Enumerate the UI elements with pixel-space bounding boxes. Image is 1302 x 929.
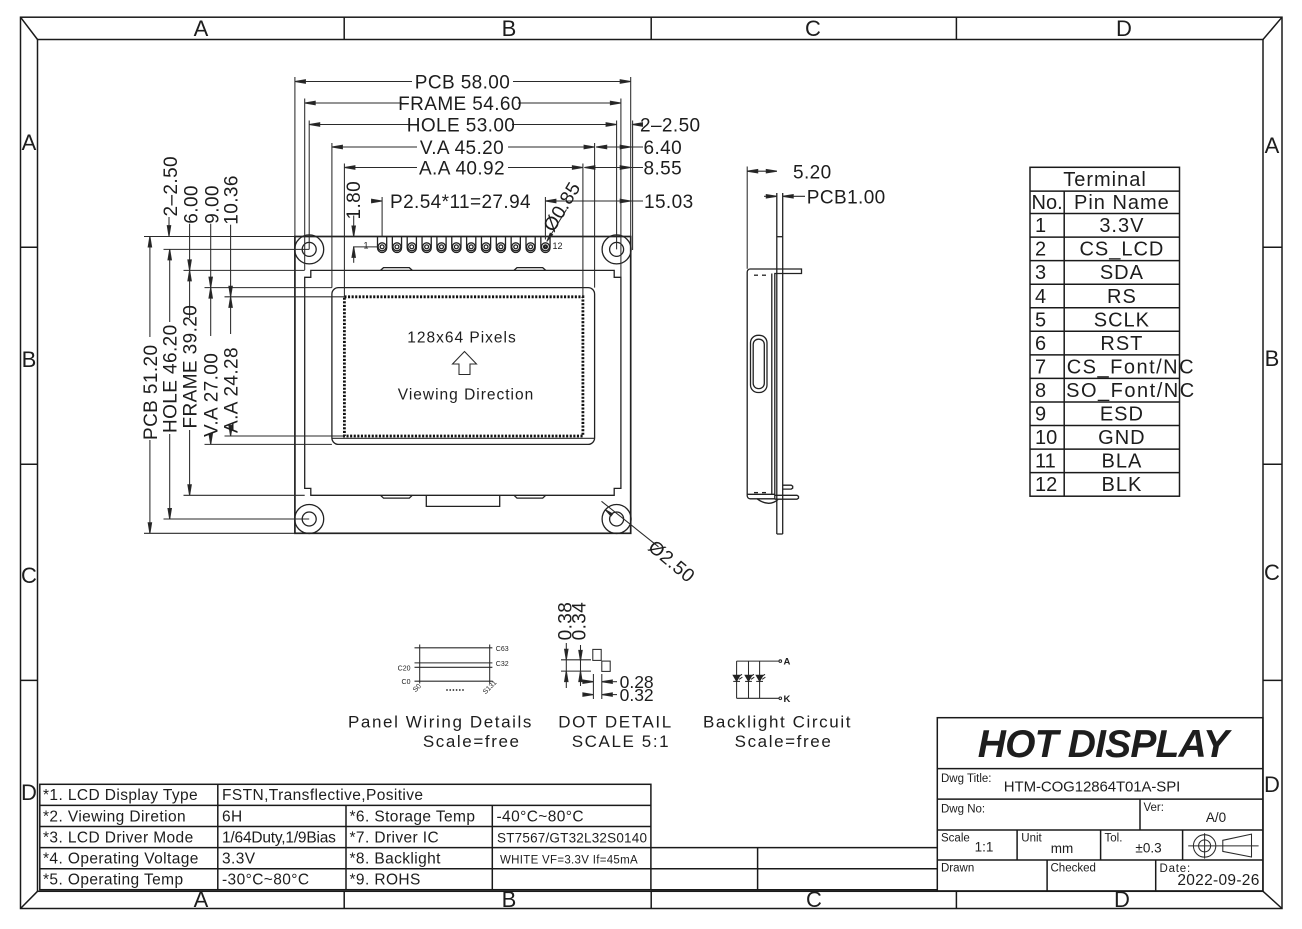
svg-text:Scale: Scale [941, 833, 970, 845]
svg-text:2: 2 [1035, 239, 1046, 261]
svg-text:*2. Viewing Diretion: *2. Viewing Diretion [43, 808, 186, 825]
svg-text:9: 9 [1035, 404, 1046, 426]
svg-text:Drawn: Drawn [941, 863, 974, 875]
svg-text:3.3V: 3.3V [222, 851, 256, 868]
svg-text:ESD: ESD [1100, 404, 1144, 426]
svg-text:6.00: 6.00 [182, 185, 203, 224]
svg-text:A: A [784, 657, 791, 668]
svg-text:WHITE VF=3.3V If=45mA: WHITE VF=3.3V If=45mA [500, 855, 638, 867]
svg-text:Scale=free: Scale=free [735, 732, 833, 751]
svg-text:D: D [21, 780, 37, 805]
svg-text:GND: GND [1098, 427, 1145, 449]
svg-text:8.55: 8.55 [644, 159, 683, 180]
svg-text:10.36: 10.36 [221, 175, 242, 225]
svg-text:BLA: BLA [1101, 451, 1142, 473]
svg-text:HTM-COG12864T01A-SPI: HTM-COG12864T01A-SPI [1004, 779, 1180, 796]
svg-text:C: C [21, 563, 37, 588]
svg-text:6.40: 6.40 [644, 138, 683, 159]
svg-text:15.03: 15.03 [644, 192, 694, 213]
svg-text:HOLE 46.20: HOLE 46.20 [161, 324, 182, 433]
svg-text:C63: C63 [496, 646, 509, 653]
svg-text:1: 1 [363, 241, 368, 251]
svg-text:FSTN,Transflective,Positive: FSTN,Transflective,Positive [222, 787, 423, 804]
svg-text:7: 7 [1035, 357, 1046, 379]
svg-text:mm: mm [1051, 841, 1074, 856]
svg-text:5.20: 5.20 [793, 162, 832, 183]
svg-text:Panel Wiring Details: Panel Wiring Details [348, 713, 533, 732]
svg-text:Ver:: Ver: [1144, 802, 1164, 814]
svg-text:C20: C20 [398, 665, 411, 672]
svg-text:PCB 51.20: PCB 51.20 [141, 345, 162, 441]
svg-text:A: A [194, 16, 209, 41]
svg-text:B: B [502, 887, 517, 912]
svg-text:1: 1 [1035, 215, 1046, 237]
svg-text:FRAME 54.60: FRAME 54.60 [398, 94, 522, 115]
svg-text:Dwg Title:: Dwg Title: [941, 773, 992, 785]
svg-text:2–2.50: 2–2.50 [640, 116, 701, 137]
svg-text:*9. ROHS: *9. ROHS [350, 872, 421, 889]
svg-text:*4. Operating Voltage: *4. Operating Voltage [43, 851, 199, 868]
svg-text:*7. Driver IC: *7. Driver IC [350, 829, 440, 846]
svg-text:RST: RST [1100, 333, 1143, 355]
svg-text:1/64Duty,1/9Bias: 1/64Duty,1/9Bias [222, 829, 336, 846]
svg-text:SCLK: SCLK [1094, 309, 1150, 331]
svg-text:No.: No. [1032, 192, 1063, 214]
svg-text:9.00: 9.00 [202, 185, 223, 224]
svg-text:12: 12 [553, 241, 563, 251]
svg-text:SDA: SDA [1100, 262, 1144, 284]
svg-text:11: 11 [1035, 451, 1056, 473]
svg-text:Unit: Unit [1021, 833, 1042, 845]
svg-text:2022-09-26: 2022-09-26 [1177, 872, 1259, 889]
svg-text:-30°C~80°C: -30°C~80°C [222, 872, 309, 889]
svg-text:V.A 45.20: V.A 45.20 [420, 138, 504, 159]
svg-text:C: C [1264, 560, 1280, 585]
svg-text:±0.3: ±0.3 [1135, 841, 1161, 856]
svg-text:A: A [194, 887, 209, 912]
svg-text:Ø2.50: Ø2.50 [644, 537, 699, 588]
svg-text:Tol.: Tol. [1105, 833, 1123, 845]
svg-text:Viewing Direction: Viewing Direction [398, 387, 534, 404]
svg-text:B: B [22, 347, 37, 372]
svg-text:6: 6 [1035, 333, 1046, 355]
svg-text:A: A [1265, 133, 1280, 158]
svg-text:Backlight Circuit: Backlight Circuit [703, 713, 852, 732]
svg-text:ST7567/GT32L32S0140: ST7567/GT32L32S0140 [497, 830, 647, 845]
svg-text:RS: RS [1107, 286, 1137, 308]
svg-text:Checked: Checked [1051, 863, 1096, 875]
svg-text:4: 4 [1035, 286, 1046, 308]
svg-text:Ø0.85: Ø0.85 [540, 179, 586, 236]
svg-text:PCB1.00: PCB1.00 [807, 188, 886, 209]
svg-text:Dwg No:: Dwg No: [941, 804, 985, 816]
svg-text:C0: C0 [402, 679, 411, 686]
svg-text:SCALE 5:1: SCALE 5:1 [572, 732, 671, 751]
svg-text:1:1: 1:1 [975, 840, 994, 855]
svg-text:10: 10 [1035, 427, 1057, 449]
svg-text:-40°C~80°C: -40°C~80°C [497, 808, 584, 825]
svg-text:A: A [22, 130, 37, 155]
svg-text:8: 8 [1035, 380, 1046, 402]
svg-text:A.A 40.92: A.A 40.92 [419, 159, 505, 180]
svg-text:2–2.50: 2–2.50 [161, 156, 182, 217]
svg-text:HOLE 53.00: HOLE 53.00 [407, 116, 516, 137]
svg-text:DOT DETAIL: DOT DETAIL [558, 713, 673, 732]
svg-text:C32: C32 [496, 661, 509, 668]
svg-text:B: B [502, 16, 517, 41]
svg-text:12: 12 [1035, 474, 1057, 496]
svg-text:CS_LCD: CS_LCD [1079, 239, 1164, 261]
svg-text:Terminal: Terminal [1063, 169, 1147, 191]
svg-text:3.3V: 3.3V [1099, 215, 1144, 237]
svg-text:S131: S131 [482, 679, 499, 696]
svg-text:*6. Storage Temp: *6. Storage Temp [350, 808, 476, 825]
svg-text:0.32: 0.32 [620, 685, 654, 705]
svg-text:Pin Name: Pin Name [1074, 192, 1170, 214]
svg-text:K: K [784, 694, 791, 705]
svg-text:C: C [806, 887, 822, 912]
svg-text:Scale=free: Scale=free [423, 732, 521, 751]
svg-text:6H: 6H [222, 808, 243, 825]
svg-text:128x64 Pixels: 128x64 Pixels [407, 330, 517, 347]
svg-text:1.80: 1.80 [344, 181, 365, 220]
svg-text:S0: S0 [412, 683, 423, 694]
svg-text:CS_Font/NC: CS_Font/NC [1067, 357, 1195, 379]
svg-text:D: D [1116, 16, 1132, 41]
svg-text:SO_Font/NC: SO_Font/NC [1066, 380, 1195, 402]
svg-text:5: 5 [1035, 309, 1046, 331]
svg-text:PCB 58.00: PCB 58.00 [415, 73, 511, 94]
svg-text:FRAME 39.20: FRAME 39.20 [181, 305, 202, 429]
svg-text:3: 3 [1035, 262, 1046, 284]
svg-text:B: B [1265, 346, 1280, 371]
svg-text:HOT DISPLAY: HOT DISPLAY [978, 723, 1232, 766]
svg-text:*5. Operating Temp: *5. Operating Temp [43, 872, 183, 889]
svg-text:D: D [1264, 772, 1280, 797]
svg-text:A/0: A/0 [1206, 810, 1226, 825]
svg-text:C: C [805, 16, 821, 41]
svg-text:V.A 27.00: V.A 27.00 [202, 353, 223, 437]
svg-text:0.34: 0.34 [570, 602, 591, 641]
svg-text:*8. Backlight: *8. Backlight [350, 851, 442, 868]
svg-text:A.A 24.28: A.A 24.28 [222, 347, 243, 433]
svg-text:*1. LCD Display Type: *1. LCD Display Type [43, 787, 198, 804]
svg-text:P2.54*11=27.94: P2.54*11=27.94 [390, 192, 531, 213]
svg-text:*3. LCD Driver Mode: *3. LCD Driver Mode [43, 829, 194, 846]
svg-text:BLK: BLK [1101, 474, 1142, 496]
